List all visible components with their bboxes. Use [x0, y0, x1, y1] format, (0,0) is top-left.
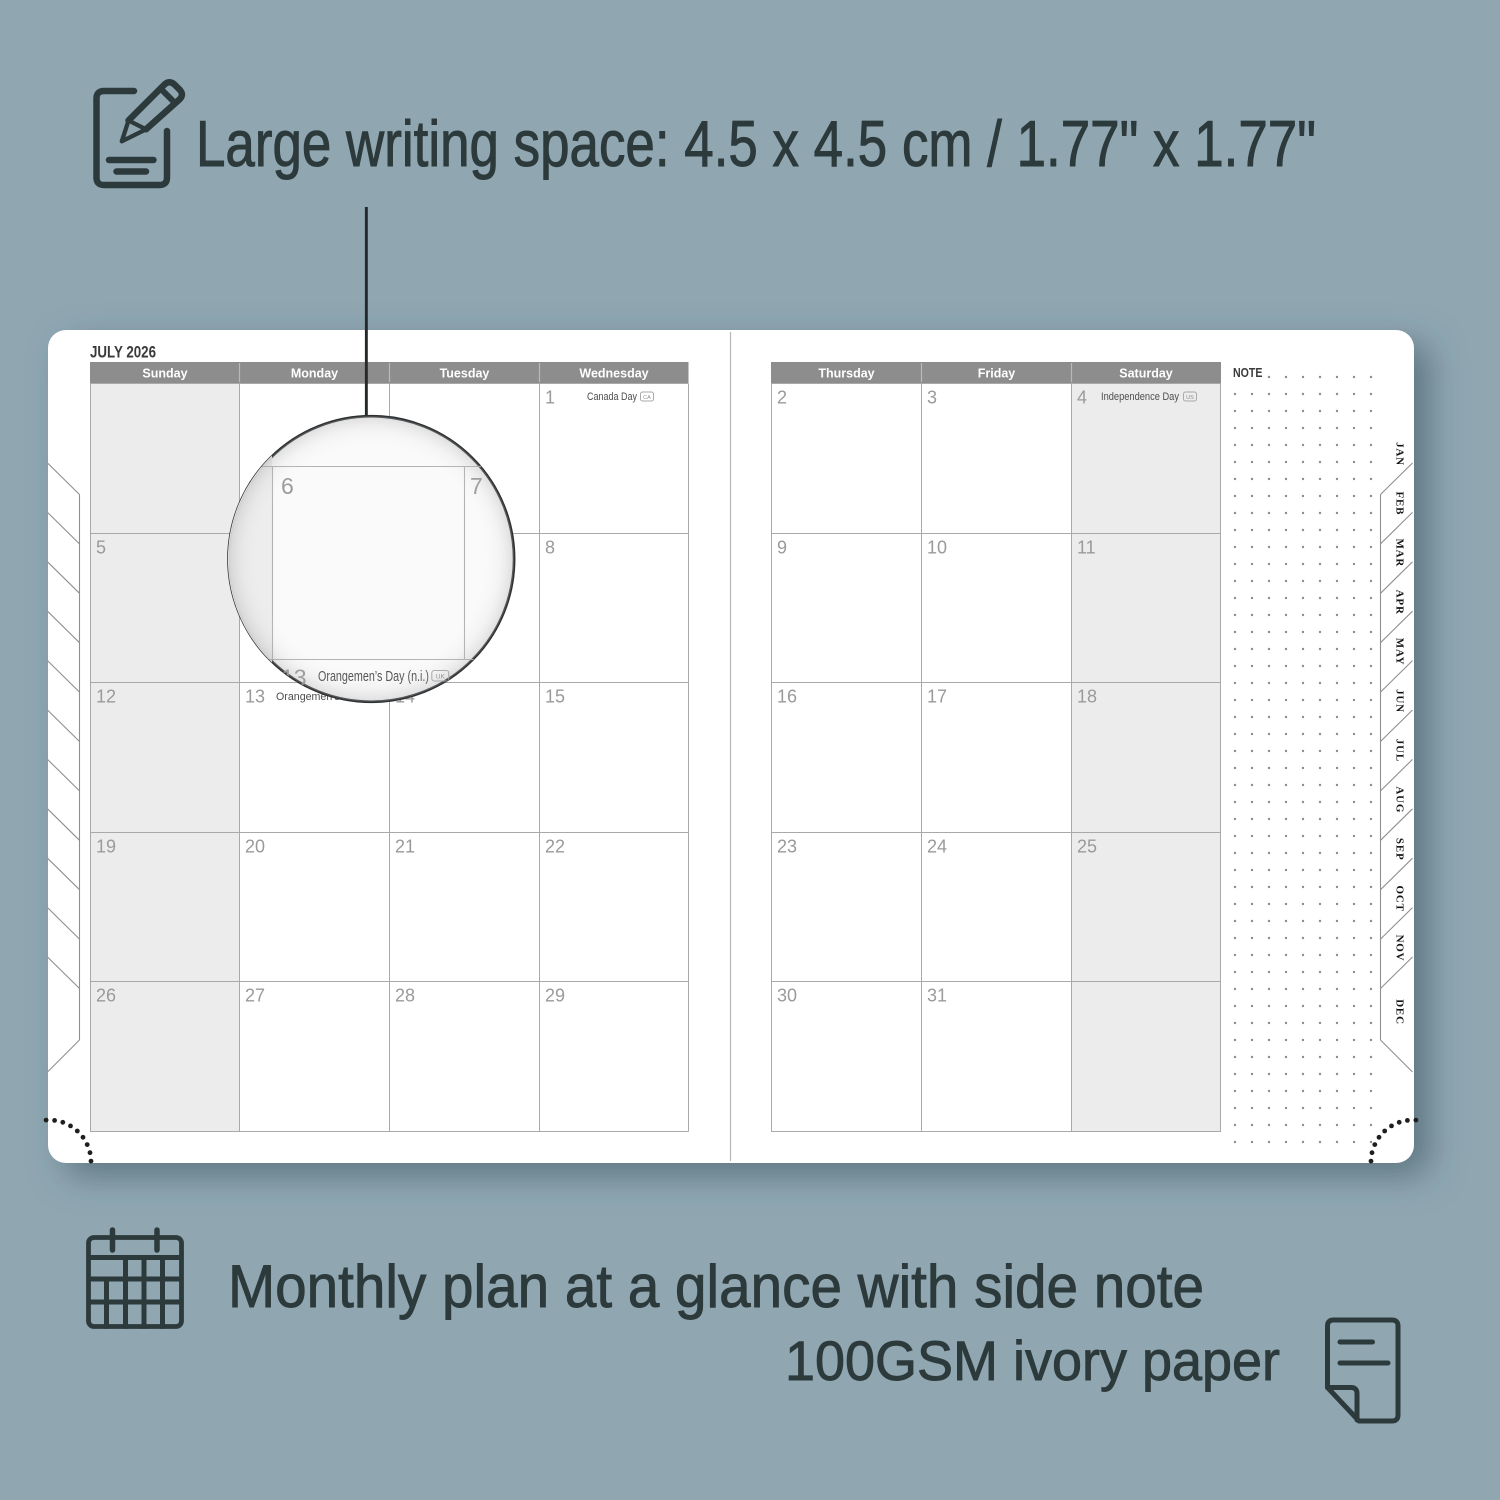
- svg-text:FEB: FEB: [1394, 492, 1406, 516]
- svg-text:27: 27: [245, 986, 265, 1006]
- svg-text:Independence Day: Independence Day: [1101, 391, 1179, 403]
- svg-text:20: 20: [245, 837, 265, 857]
- svg-text:NOTE: NOTE: [1233, 365, 1263, 380]
- svg-text:9: 9: [777, 538, 787, 558]
- svg-text:Canada Day: Canada Day: [587, 391, 637, 403]
- svg-text:Friday: Friday: [978, 367, 1016, 381]
- svg-text:21: 21: [395, 837, 415, 857]
- svg-text:CA: CA: [643, 395, 651, 401]
- svg-text:JUL: JUL: [1394, 739, 1406, 762]
- svg-text:2: 2: [777, 388, 787, 408]
- svg-text:10: 10: [927, 538, 947, 558]
- svg-text:1: 1: [545, 388, 555, 408]
- svg-text:5: 5: [96, 538, 106, 558]
- svg-text:16: 16: [777, 687, 797, 707]
- svg-text:31: 31: [927, 986, 947, 1006]
- svg-text:18: 18: [1077, 687, 1097, 707]
- svg-text:SEP: SEP: [1394, 838, 1406, 861]
- svg-text:Large writing space: 4.5 x 4.5: Large writing space: 4.5 x 4.5 cm / 1.77…: [196, 107, 1316, 180]
- svg-text:17: 17: [927, 687, 947, 707]
- svg-text:OCT: OCT: [1394, 885, 1406, 911]
- svg-text:28: 28: [395, 986, 415, 1006]
- svg-text:APR: APR: [1394, 590, 1406, 615]
- svg-text:19: 19: [96, 837, 116, 857]
- svg-text:25: 25: [1077, 837, 1097, 857]
- svg-text:MAR: MAR: [1394, 538, 1406, 567]
- svg-text:22: 22: [545, 837, 565, 857]
- svg-text:Sunday: Sunday: [142, 367, 187, 381]
- svg-text:US: US: [1186, 395, 1194, 401]
- svg-text:4: 4: [1077, 388, 1087, 408]
- svg-text:JULY 2026: JULY 2026: [90, 344, 156, 362]
- svg-text:8: 8: [545, 538, 555, 558]
- svg-text:30: 30: [777, 986, 797, 1006]
- svg-text:11: 11: [1077, 538, 1096, 558]
- svg-text:Monday: Monday: [291, 367, 338, 381]
- svg-text:Tuesday: Tuesday: [440, 367, 490, 381]
- svg-text:23: 23: [777, 837, 797, 857]
- svg-text:13: 13: [245, 687, 265, 707]
- svg-text:29: 29: [545, 986, 565, 1006]
- svg-text:Monthly plan at a glance with: Monthly plan at a glance with side note: [228, 1253, 1204, 1320]
- svg-text:JUN: JUN: [1394, 689, 1406, 713]
- svg-text:Thursday: Thursday: [818, 367, 874, 381]
- svg-text:AUG: AUG: [1394, 786, 1406, 813]
- svg-text:26: 26: [96, 986, 116, 1006]
- svg-text:JAN: JAN: [1394, 442, 1406, 466]
- svg-text:3: 3: [927, 388, 937, 408]
- svg-text:24: 24: [927, 837, 947, 857]
- svg-text:DEC: DEC: [1394, 999, 1406, 1025]
- svg-text:12: 12: [96, 687, 116, 707]
- svg-text:NOV: NOV: [1394, 935, 1406, 962]
- svg-text:15: 15: [545, 687, 565, 707]
- svg-text:MAY: MAY: [1394, 638, 1406, 666]
- svg-text:Saturday: Saturday: [1119, 367, 1173, 381]
- svg-text:100GSM ivory paper: 100GSM ivory paper: [785, 1329, 1280, 1392]
- svg-text:Wednesday: Wednesday: [579, 367, 648, 381]
